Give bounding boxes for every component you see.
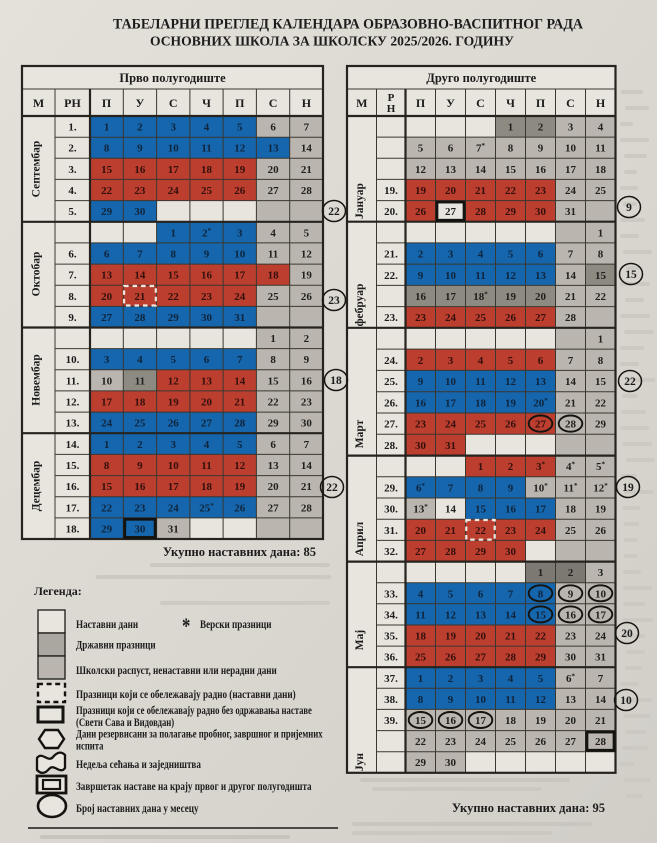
svg-text:Празници који се обележавају р: Празници који се обележавају радно без о… xyxy=(76,705,312,717)
svg-text:12: 12 xyxy=(535,694,547,706)
svg-text:20: 20 xyxy=(415,525,427,537)
svg-text:7: 7 xyxy=(237,354,243,366)
svg-text:5: 5 xyxy=(237,122,243,134)
svg-text:8: 8 xyxy=(538,588,544,600)
svg-text:14: 14 xyxy=(234,375,246,387)
svg-text:3: 3 xyxy=(568,122,574,134)
svg-text:17.: 17. xyxy=(66,502,80,514)
svg-text:6: 6 xyxy=(270,122,276,134)
svg-text:23.: 23. xyxy=(384,312,398,324)
svg-text:9: 9 xyxy=(304,354,310,366)
svg-text:28: 28 xyxy=(505,652,517,664)
svg-text:9: 9 xyxy=(137,143,143,155)
svg-text:21: 21 xyxy=(565,291,576,303)
svg-text:1: 1 xyxy=(598,333,604,345)
svg-text:30: 30 xyxy=(134,206,146,218)
svg-text:13: 13 xyxy=(565,694,577,706)
svg-text:16: 16 xyxy=(301,375,313,387)
svg-text:12: 12 xyxy=(505,270,517,282)
svg-text:19: 19 xyxy=(415,185,427,197)
svg-text:13: 13 xyxy=(101,270,113,282)
svg-text:6: 6 xyxy=(478,588,484,600)
svg-text:28: 28 xyxy=(595,736,607,748)
svg-text:Ч: Ч xyxy=(202,96,211,110)
svg-text:9.: 9. xyxy=(68,312,77,324)
svg-text:15: 15 xyxy=(505,164,517,176)
svg-text:30: 30 xyxy=(415,440,427,452)
svg-text:16.: 16. xyxy=(66,481,80,493)
svg-text:30: 30 xyxy=(565,652,577,664)
svg-text:10.: 10. xyxy=(66,354,80,366)
svg-text:10: 10 xyxy=(565,143,577,155)
svg-text:4.: 4. xyxy=(68,185,77,197)
svg-text:19: 19 xyxy=(301,270,313,282)
svg-text:19: 19 xyxy=(505,291,517,303)
svg-text:23: 23 xyxy=(134,502,146,514)
svg-text:3: 3 xyxy=(448,355,454,367)
svg-text:8.: 8. xyxy=(68,291,77,303)
svg-text:28: 28 xyxy=(475,206,487,218)
svg-text:24: 24 xyxy=(595,631,607,643)
svg-text:17: 17 xyxy=(565,164,577,176)
svg-text:26: 26 xyxy=(168,418,180,430)
svg-text:11: 11 xyxy=(475,376,485,388)
svg-text:8: 8 xyxy=(170,249,176,261)
svg-text:1: 1 xyxy=(538,567,544,579)
svg-text:2.: 2. xyxy=(68,143,77,155)
svg-text:6: 6 xyxy=(538,249,544,261)
svg-text:17: 17 xyxy=(101,397,113,409)
svg-text:ТАБЕЛАРНИ ПРЕГЛЕД КАЛЕНДАРА ОБ: ТАБЕЛАРНИ ПРЕГЛЕД КАЛЕНДАРА ОБРАЗОВНО-ВА… xyxy=(113,17,584,33)
svg-text:9: 9 xyxy=(418,270,424,282)
svg-text:31: 31 xyxy=(595,652,606,664)
svg-text:2: 2 xyxy=(538,122,544,134)
svg-text:12: 12 xyxy=(445,609,457,621)
svg-text:15: 15 xyxy=(625,269,637,281)
svg-text:15: 15 xyxy=(475,504,487,516)
svg-text:8: 8 xyxy=(508,143,514,155)
svg-text:20: 20 xyxy=(621,628,633,640)
svg-text:17: 17 xyxy=(168,481,180,493)
svg-text:25: 25 xyxy=(475,312,487,324)
svg-text:Празници који се обележавају р: Празници који се обележавају радно (наст… xyxy=(76,689,296,701)
svg-text:23: 23 xyxy=(415,312,427,324)
svg-text:26.: 26. xyxy=(384,397,398,409)
svg-text:Октобар: Октобар xyxy=(31,252,43,297)
svg-text:13: 13 xyxy=(475,609,487,621)
svg-text:12.: 12. xyxy=(66,397,80,409)
svg-text:5: 5 xyxy=(304,227,310,239)
svg-text:С: С xyxy=(169,96,178,110)
svg-text:18: 18 xyxy=(565,504,577,516)
svg-text:22: 22 xyxy=(328,206,340,218)
svg-text:24: 24 xyxy=(168,185,180,197)
svg-text:29.: 29. xyxy=(384,482,398,494)
svg-text:14: 14 xyxy=(301,460,313,472)
svg-text:13: 13 xyxy=(268,460,280,472)
svg-text:6.: 6. xyxy=(68,249,77,261)
svg-text:13: 13 xyxy=(445,164,457,176)
svg-text:21: 21 xyxy=(565,397,576,409)
svg-text:26: 26 xyxy=(234,502,246,514)
svg-text:Н: Н xyxy=(387,103,396,115)
svg-text:28: 28 xyxy=(565,419,577,431)
svg-text:5: 5 xyxy=(170,354,176,366)
svg-text:Ч: Ч xyxy=(506,96,515,110)
svg-text:37.: 37. xyxy=(384,673,398,685)
svg-text:19.: 19. xyxy=(384,185,398,197)
svg-text:29: 29 xyxy=(535,652,547,664)
svg-text:2: 2 xyxy=(418,249,424,261)
svg-text:15: 15 xyxy=(268,375,280,387)
svg-text:10: 10 xyxy=(475,694,487,706)
svg-text:4: 4 xyxy=(508,673,514,685)
svg-text:25: 25 xyxy=(268,291,280,303)
svg-text:14: 14 xyxy=(445,504,457,516)
svg-text:30: 30 xyxy=(134,523,146,535)
svg-text:29: 29 xyxy=(595,419,607,431)
svg-text:26: 26 xyxy=(535,736,547,748)
svg-text:Школски распуст, ненаставни ил: Школски распуст, ненаставни или нерадни … xyxy=(76,665,277,677)
svg-text:31.: 31. xyxy=(384,525,398,537)
svg-text:16: 16 xyxy=(445,715,457,727)
svg-text:5: 5 xyxy=(418,143,424,155)
svg-text:18: 18 xyxy=(201,481,213,493)
svg-text:26: 26 xyxy=(301,291,313,303)
svg-text:29: 29 xyxy=(415,757,427,769)
svg-text:24: 24 xyxy=(565,185,577,197)
svg-text:29: 29 xyxy=(168,312,180,324)
svg-text:15: 15 xyxy=(168,270,180,282)
svg-text:30.: 30. xyxy=(384,504,398,516)
svg-text:6: 6 xyxy=(270,439,276,451)
svg-text:27: 27 xyxy=(535,312,547,324)
svg-text:3: 3 xyxy=(598,567,604,579)
svg-text:21: 21 xyxy=(475,185,486,197)
svg-text:20: 20 xyxy=(201,397,213,409)
svg-text:24: 24 xyxy=(445,419,457,431)
svg-text:27: 27 xyxy=(445,206,457,218)
svg-text:М: М xyxy=(356,96,367,110)
svg-text:24: 24 xyxy=(168,502,180,514)
svg-text:9: 9 xyxy=(137,460,143,472)
svg-text:4: 4 xyxy=(204,439,210,451)
svg-text:27: 27 xyxy=(268,502,280,514)
svg-text:Април: Април xyxy=(354,521,366,556)
svg-text:5: 5 xyxy=(237,439,243,451)
svg-text:29: 29 xyxy=(101,523,113,535)
svg-text:16: 16 xyxy=(415,291,427,303)
svg-text:27: 27 xyxy=(101,312,113,324)
svg-text:31: 31 xyxy=(565,206,576,218)
svg-text:26: 26 xyxy=(505,419,517,431)
svg-text:22: 22 xyxy=(624,376,636,388)
svg-text:11.: 11. xyxy=(66,375,79,387)
svg-text:16: 16 xyxy=(505,504,517,516)
svg-text:4: 4 xyxy=(478,249,484,261)
svg-text:22: 22 xyxy=(595,397,607,409)
svg-text:16: 16 xyxy=(134,481,146,493)
svg-text:18: 18 xyxy=(201,164,213,176)
svg-text:П: П xyxy=(102,96,112,110)
svg-text:22: 22 xyxy=(101,185,113,197)
svg-text:23: 23 xyxy=(328,295,340,307)
svg-text:2: 2 xyxy=(137,122,143,134)
svg-text:23: 23 xyxy=(535,185,547,197)
svg-text:П: П xyxy=(235,96,245,110)
svg-text:4: 4 xyxy=(137,354,143,366)
svg-text:19: 19 xyxy=(234,164,246,176)
svg-text:27: 27 xyxy=(268,185,280,197)
svg-text:2: 2 xyxy=(448,673,454,685)
svg-text:Мај: Мај xyxy=(354,630,366,651)
svg-text:11: 11 xyxy=(135,375,145,387)
svg-text:26: 26 xyxy=(595,525,607,537)
svg-text:33.: 33. xyxy=(384,588,398,600)
svg-text:13.: 13. xyxy=(66,418,80,430)
svg-text:22: 22 xyxy=(505,185,517,197)
svg-text:Наставни дани: Наставни дани xyxy=(76,619,138,631)
svg-text:10: 10 xyxy=(168,460,180,472)
svg-text:2: 2 xyxy=(418,355,424,367)
svg-text:22: 22 xyxy=(535,631,547,643)
svg-text:РН: РН xyxy=(64,96,81,110)
svg-text:24: 24 xyxy=(535,525,547,537)
svg-text:Легенда:: Легенда: xyxy=(34,584,82,598)
svg-text:12: 12 xyxy=(301,249,313,261)
svg-text:15: 15 xyxy=(535,609,547,621)
svg-text:7: 7 xyxy=(448,482,454,494)
svg-text:17: 17 xyxy=(535,504,547,516)
svg-text:19: 19 xyxy=(168,397,180,409)
svg-text:12: 12 xyxy=(234,143,246,155)
svg-text:22.: 22. xyxy=(384,270,398,282)
svg-text:8: 8 xyxy=(104,143,110,155)
svg-text:9: 9 xyxy=(538,143,544,155)
svg-text:7: 7 xyxy=(598,673,604,685)
svg-text:28.: 28. xyxy=(384,440,398,452)
svg-text:22: 22 xyxy=(326,482,338,494)
svg-text:25: 25 xyxy=(475,419,487,431)
svg-text:10: 10 xyxy=(620,695,632,707)
svg-text:27: 27 xyxy=(201,418,213,430)
svg-text:4: 4 xyxy=(204,122,210,134)
svg-text:25.: 25. xyxy=(384,376,398,388)
svg-text:17: 17 xyxy=(234,270,246,282)
svg-text:4: 4 xyxy=(270,227,276,239)
svg-text:18: 18 xyxy=(268,270,280,282)
svg-text:8: 8 xyxy=(418,694,424,706)
svg-text:30: 30 xyxy=(505,546,517,558)
svg-text:11: 11 xyxy=(415,609,425,621)
svg-text:18.: 18. xyxy=(66,523,80,535)
svg-text:Јун: Јун xyxy=(354,753,366,772)
svg-text:18: 18 xyxy=(134,397,146,409)
svg-text:38.: 38. xyxy=(384,694,398,706)
svg-text:8: 8 xyxy=(598,249,604,261)
svg-text:4: 4 xyxy=(418,588,424,600)
svg-text:26: 26 xyxy=(415,206,427,218)
svg-text:1: 1 xyxy=(270,333,276,345)
svg-text:28: 28 xyxy=(301,185,313,197)
svg-text:27.: 27. xyxy=(384,419,398,431)
svg-text:20: 20 xyxy=(268,164,280,176)
svg-text:27: 27 xyxy=(475,652,487,664)
svg-text:5: 5 xyxy=(538,673,544,685)
svg-text:22: 22 xyxy=(415,736,427,748)
svg-text:20: 20 xyxy=(445,185,457,197)
svg-text:Верски празници: Верски празници xyxy=(200,619,272,631)
svg-text:6: 6 xyxy=(448,143,454,155)
svg-text:С: С xyxy=(269,96,278,110)
svg-text:Број наставних дана у месецу: Број наставних дана у месецу xyxy=(76,803,199,815)
svg-text:20.: 20. xyxy=(384,206,398,218)
svg-text:4: 4 xyxy=(598,122,604,134)
svg-text:Укупно наставних дана: 85: Укупно наставних дана: 85 xyxy=(163,545,316,559)
svg-text:Укупно наставних дана: 95: Укупно наставних дана: 95 xyxy=(452,801,605,815)
svg-text:25: 25 xyxy=(201,185,213,197)
svg-text:19: 19 xyxy=(234,481,246,493)
svg-text:14: 14 xyxy=(565,376,577,388)
svg-text:2: 2 xyxy=(568,567,574,579)
svg-text:30: 30 xyxy=(535,206,547,218)
svg-text:16: 16 xyxy=(201,270,213,282)
svg-text:9: 9 xyxy=(448,694,454,706)
svg-text:24: 24 xyxy=(445,312,457,324)
svg-text:25: 25 xyxy=(134,418,146,430)
svg-text:3.: 3. xyxy=(68,164,77,176)
svg-text:25: 25 xyxy=(505,736,517,748)
svg-text:Март: Март xyxy=(354,419,366,448)
svg-text:1: 1 xyxy=(418,673,424,685)
svg-text:10: 10 xyxy=(168,143,180,155)
svg-text:3: 3 xyxy=(170,439,176,451)
svg-text:31: 31 xyxy=(168,523,179,535)
svg-text:27: 27 xyxy=(565,736,577,748)
svg-text:24: 24 xyxy=(101,418,113,430)
svg-text:2: 2 xyxy=(304,333,310,345)
svg-text:Септембар: Септембар xyxy=(31,141,43,198)
svg-text:П: П xyxy=(416,96,426,110)
svg-text:10: 10 xyxy=(234,249,246,261)
svg-text:19: 19 xyxy=(445,631,457,643)
svg-text:24: 24 xyxy=(234,291,246,303)
svg-text:26: 26 xyxy=(505,312,517,324)
svg-text:23: 23 xyxy=(505,525,517,537)
svg-text:17: 17 xyxy=(475,715,487,727)
svg-text:8: 8 xyxy=(270,354,276,366)
svg-text:17: 17 xyxy=(595,609,607,621)
svg-text:У: У xyxy=(446,96,455,110)
svg-text:Новембар: Новембар xyxy=(31,354,43,405)
svg-text:Дани резервисани за полагање п: Дани резервисани за полагање пробног, за… xyxy=(76,728,323,740)
svg-text:15: 15 xyxy=(101,481,113,493)
svg-text:5.: 5. xyxy=(68,206,77,218)
svg-text:22: 22 xyxy=(101,502,113,514)
svg-text:12: 12 xyxy=(168,375,180,387)
svg-text:3: 3 xyxy=(104,354,110,366)
svg-text:Друго полугодиште: Друго полугодиште xyxy=(426,71,536,85)
svg-text:15: 15 xyxy=(595,270,607,282)
svg-text:23: 23 xyxy=(201,291,213,303)
svg-text:10: 10 xyxy=(445,270,457,282)
svg-text:6: 6 xyxy=(204,354,210,366)
svg-text:1: 1 xyxy=(598,227,604,239)
svg-text:16: 16 xyxy=(565,609,577,621)
svg-text:29: 29 xyxy=(101,206,113,218)
svg-text:13: 13 xyxy=(535,376,547,388)
svg-text:3: 3 xyxy=(478,673,484,685)
svg-text:фебруар: фебруар xyxy=(354,284,366,327)
svg-text:36.: 36. xyxy=(384,652,398,664)
svg-text:23: 23 xyxy=(415,419,427,431)
svg-text:21: 21 xyxy=(595,715,606,727)
svg-text:9: 9 xyxy=(508,482,514,494)
svg-text:10: 10 xyxy=(101,375,113,387)
svg-text:24: 24 xyxy=(475,736,487,748)
svg-text:25: 25 xyxy=(415,652,427,664)
svg-text:26: 26 xyxy=(234,185,246,197)
svg-text:11: 11 xyxy=(201,460,211,472)
svg-text:ОСНОВНИХ ШКОЛА ЗА ШКОЛСКУ 2025: ОСНОВНИХ ШКОЛА ЗА ШКОЛСКУ 2025/2026. ГОД… xyxy=(150,35,514,50)
svg-text:18: 18 xyxy=(595,164,607,176)
svg-text:24.: 24. xyxy=(384,355,398,367)
svg-text:35.: 35. xyxy=(384,631,398,643)
svg-text:1: 1 xyxy=(478,461,484,473)
svg-text:6: 6 xyxy=(104,249,110,261)
svg-text:28: 28 xyxy=(134,312,146,324)
svg-text:Недеља сећања и заједништва: Недеља сећања и заједништва xyxy=(76,759,201,771)
svg-text:22: 22 xyxy=(595,291,607,303)
svg-text:2: 2 xyxy=(508,461,514,473)
svg-text:11: 11 xyxy=(201,143,211,155)
svg-text:П: П xyxy=(536,96,546,110)
svg-text:21: 21 xyxy=(234,397,245,409)
svg-text:22: 22 xyxy=(268,397,280,409)
svg-text:13: 13 xyxy=(268,143,280,155)
svg-text:У: У xyxy=(135,96,144,110)
svg-text:15: 15 xyxy=(595,376,607,388)
svg-text:14: 14 xyxy=(565,270,577,282)
svg-text:27: 27 xyxy=(535,419,547,431)
svg-text:Завршетак наставе на крају прв: Завршетак наставе на крају првог и друго… xyxy=(76,781,312,793)
svg-text:12: 12 xyxy=(234,460,246,472)
svg-text:17: 17 xyxy=(445,397,457,409)
svg-text:20: 20 xyxy=(475,631,487,643)
svg-text:7: 7 xyxy=(568,355,574,367)
svg-text:18: 18 xyxy=(505,715,517,727)
svg-text:14: 14 xyxy=(134,270,146,282)
svg-text:29: 29 xyxy=(475,546,487,558)
svg-text:20: 20 xyxy=(565,715,577,727)
svg-text:Прво полугодиште: Прво полугодиште xyxy=(119,71,226,85)
svg-text:1.: 1. xyxy=(68,122,77,134)
svg-text:испита: испита xyxy=(76,740,103,752)
svg-text:15: 15 xyxy=(101,164,113,176)
svg-text:31: 31 xyxy=(234,312,245,324)
svg-text:С: С xyxy=(476,96,485,110)
svg-text:6: 6 xyxy=(538,355,544,367)
svg-text:Н: Н xyxy=(596,96,606,110)
svg-text:11: 11 xyxy=(505,694,515,706)
svg-text:21.: 21. xyxy=(384,249,398,261)
svg-text:18: 18 xyxy=(415,631,427,643)
svg-text:16: 16 xyxy=(535,164,547,176)
svg-text:Н: Н xyxy=(302,96,312,110)
svg-text:17: 17 xyxy=(168,164,180,176)
svg-text:28: 28 xyxy=(234,418,246,430)
svg-text:32.: 32. xyxy=(384,546,398,558)
